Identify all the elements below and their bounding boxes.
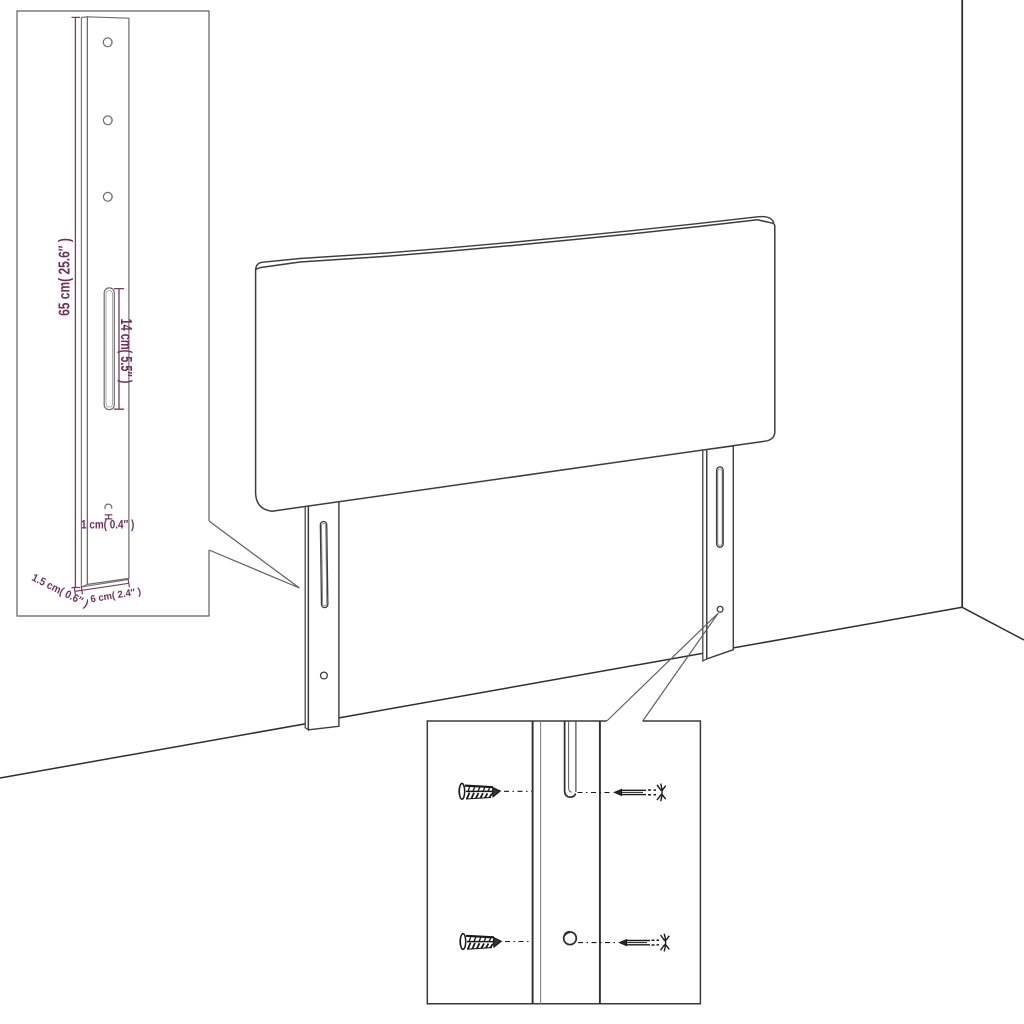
svg-text:14 cm( 5.5″ ): 14 cm( 5.5″ ) xyxy=(117,319,135,384)
svg-text:1 cm( 0.4″ ): 1 cm( 0.4″ ) xyxy=(81,519,135,532)
svg-text:65 cm( 25.6″ ): 65 cm( 25.6″ ) xyxy=(55,238,73,316)
